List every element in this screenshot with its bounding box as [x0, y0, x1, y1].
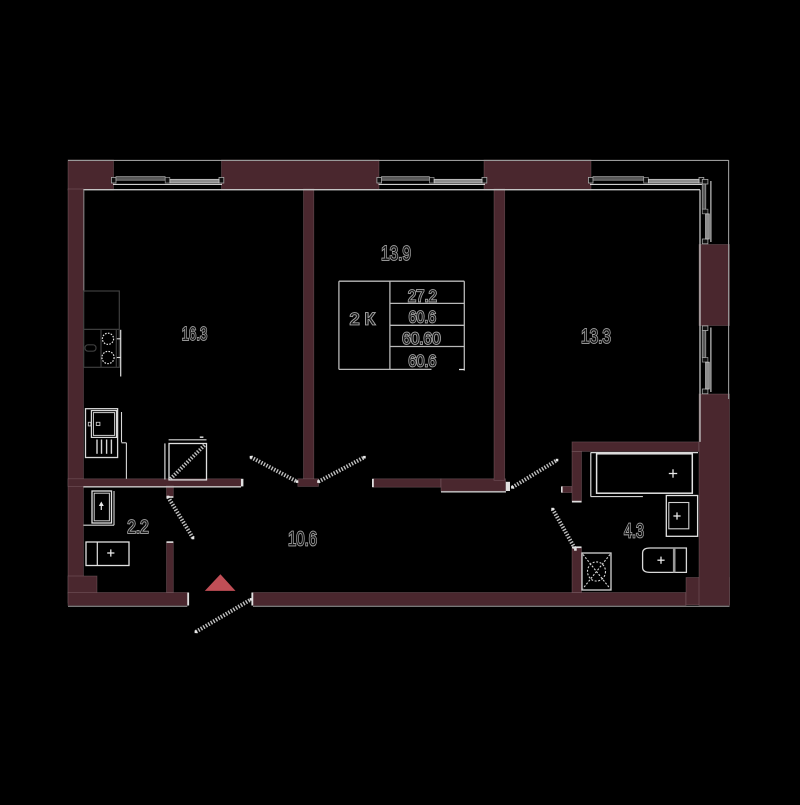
- svg-text:2 К: 2 К: [350, 309, 375, 328]
- svg-text:4.3: 4.3: [624, 520, 644, 543]
- svg-text:60.6: 60.6: [409, 308, 437, 327]
- svg-text:13.3: 13.3: [581, 325, 611, 348]
- svg-text:2.2: 2.2: [127, 517, 149, 537]
- svg-text:60.60: 60.60: [402, 329, 441, 348]
- svg-text:60.6: 60.6: [408, 352, 436, 371]
- svg-text:27.2: 27.2: [408, 286, 437, 305]
- svg-text:10.6: 10.6: [288, 529, 317, 551]
- svg-text:16.3: 16.3: [182, 324, 208, 344]
- svg-text:13.9: 13.9: [381, 242, 411, 265]
